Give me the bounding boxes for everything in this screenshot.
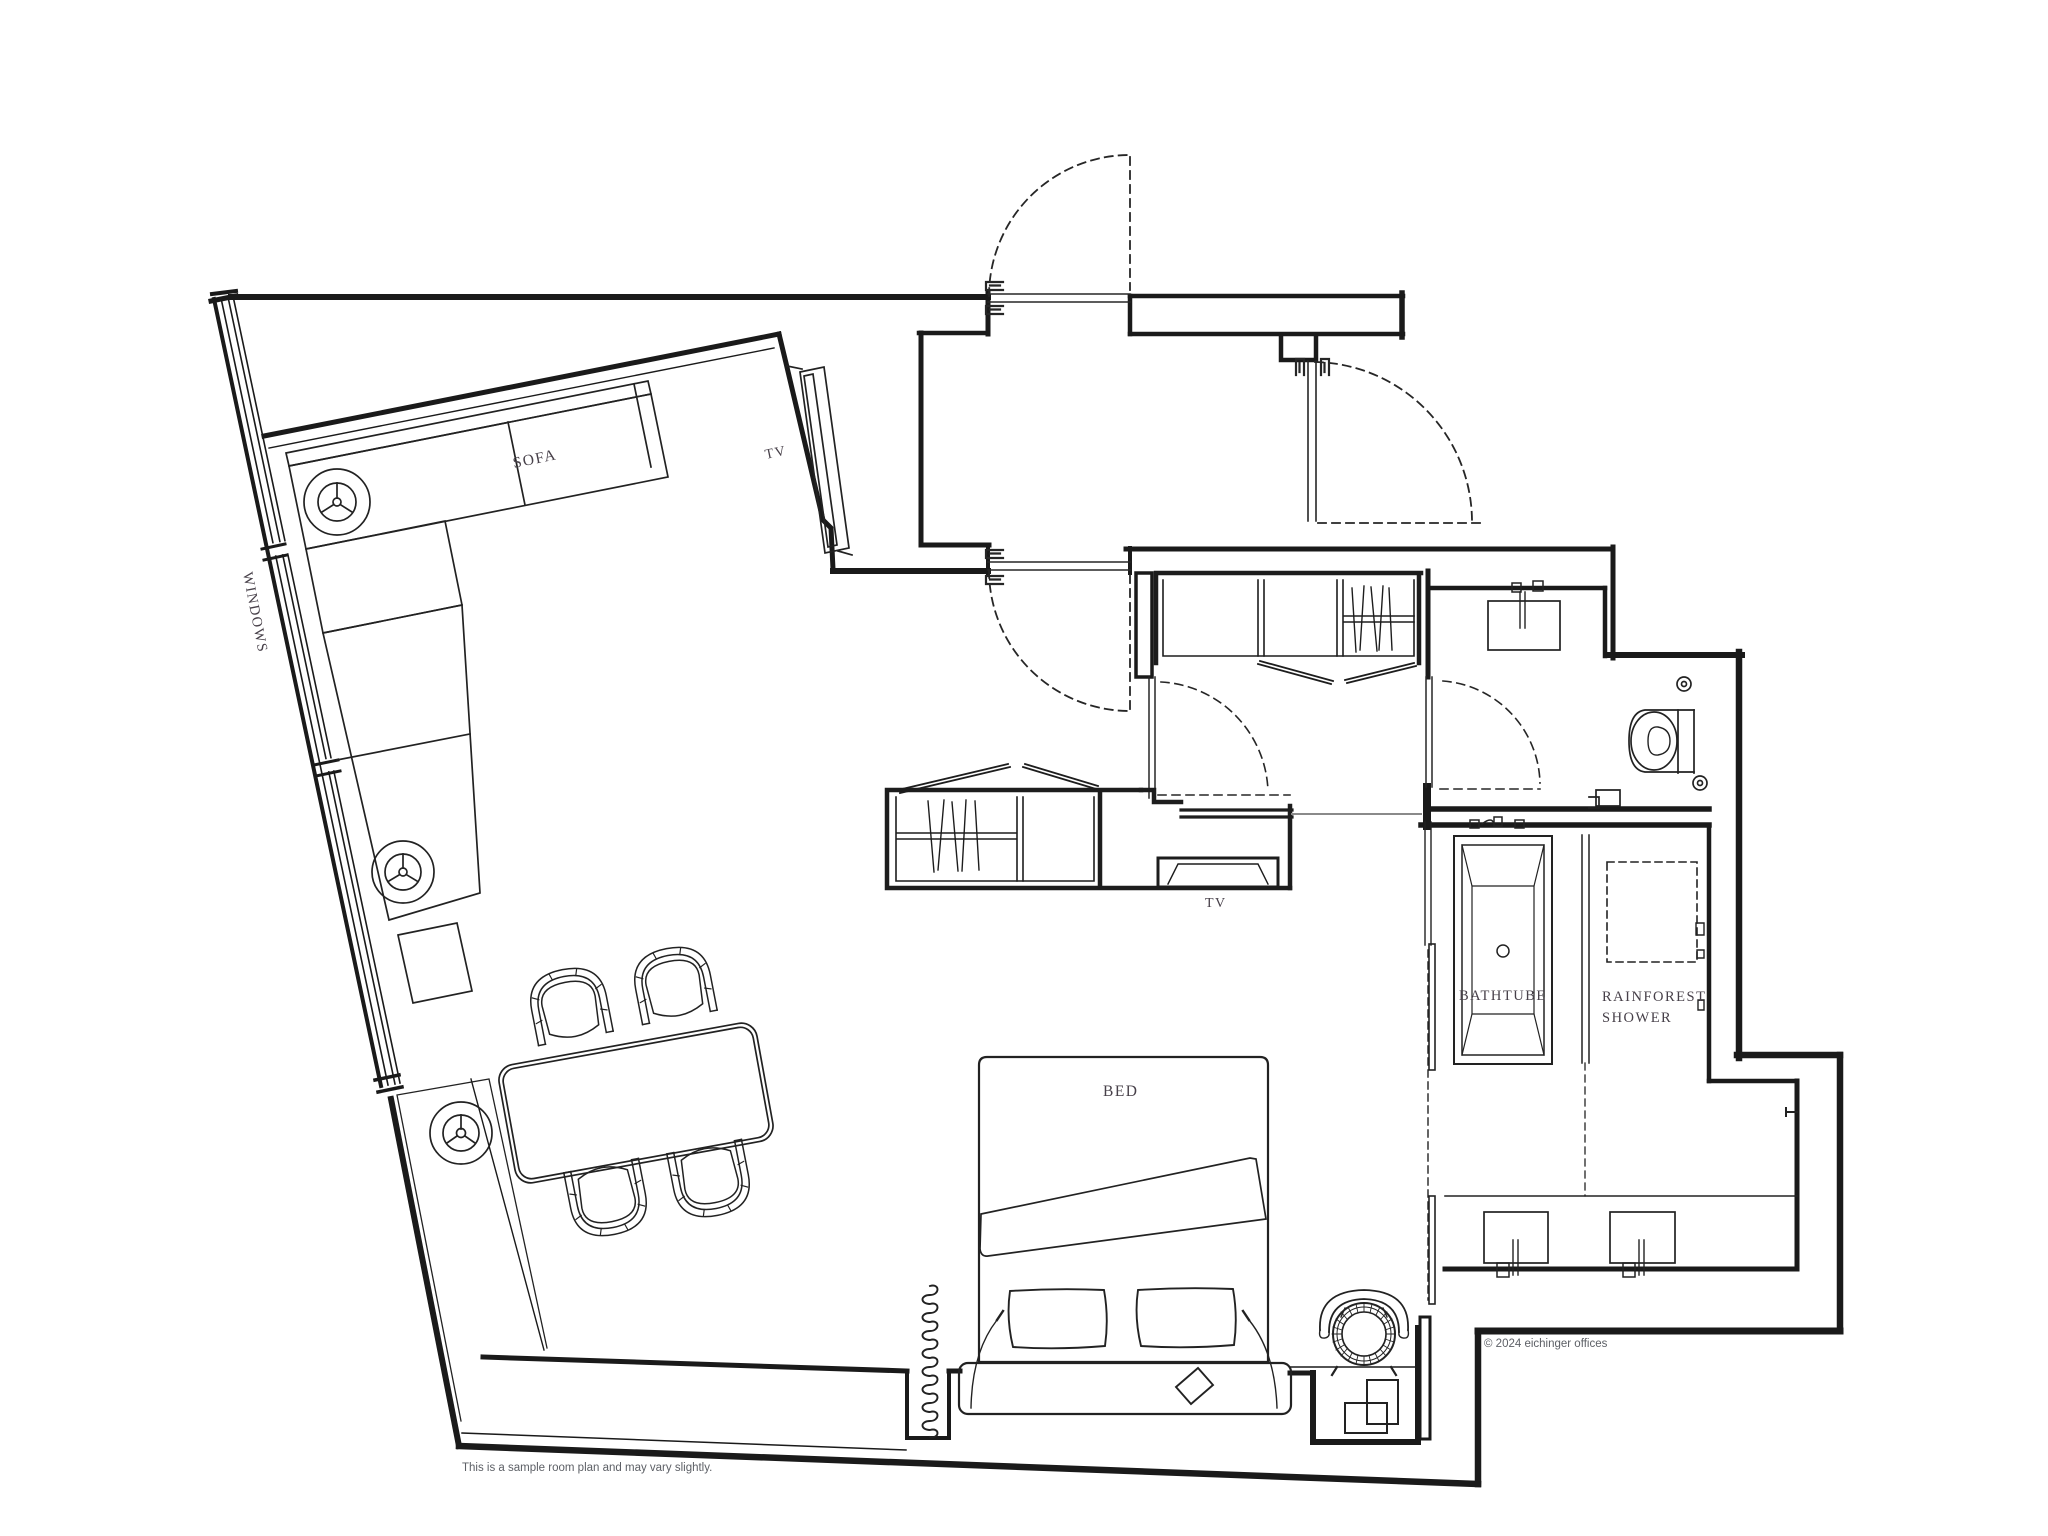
svg-text:This is a sample room plan and: This is a sample room plan and may vary … <box>462 1462 712 1474</box>
svg-text:RAINFOREST: RAINFOREST <box>1602 989 1706 1005</box>
svg-text:WINDOWS: WINDOWS <box>239 571 270 655</box>
svg-text:TV: TV <box>764 444 788 463</box>
svg-text:TV: TV <box>1205 896 1227 911</box>
svg-text:SOFA: SOFA <box>511 446 558 472</box>
svg-text:© 2024 eichinger offices: © 2024 eichinger offices <box>1484 1338 1608 1350</box>
svg-text:SHOWER: SHOWER <box>1602 1010 1672 1026</box>
svg-text:BED: BED <box>1103 1083 1139 1100</box>
svg-text:BATHTUBE: BATHTUBE <box>1459 988 1547 1004</box>
